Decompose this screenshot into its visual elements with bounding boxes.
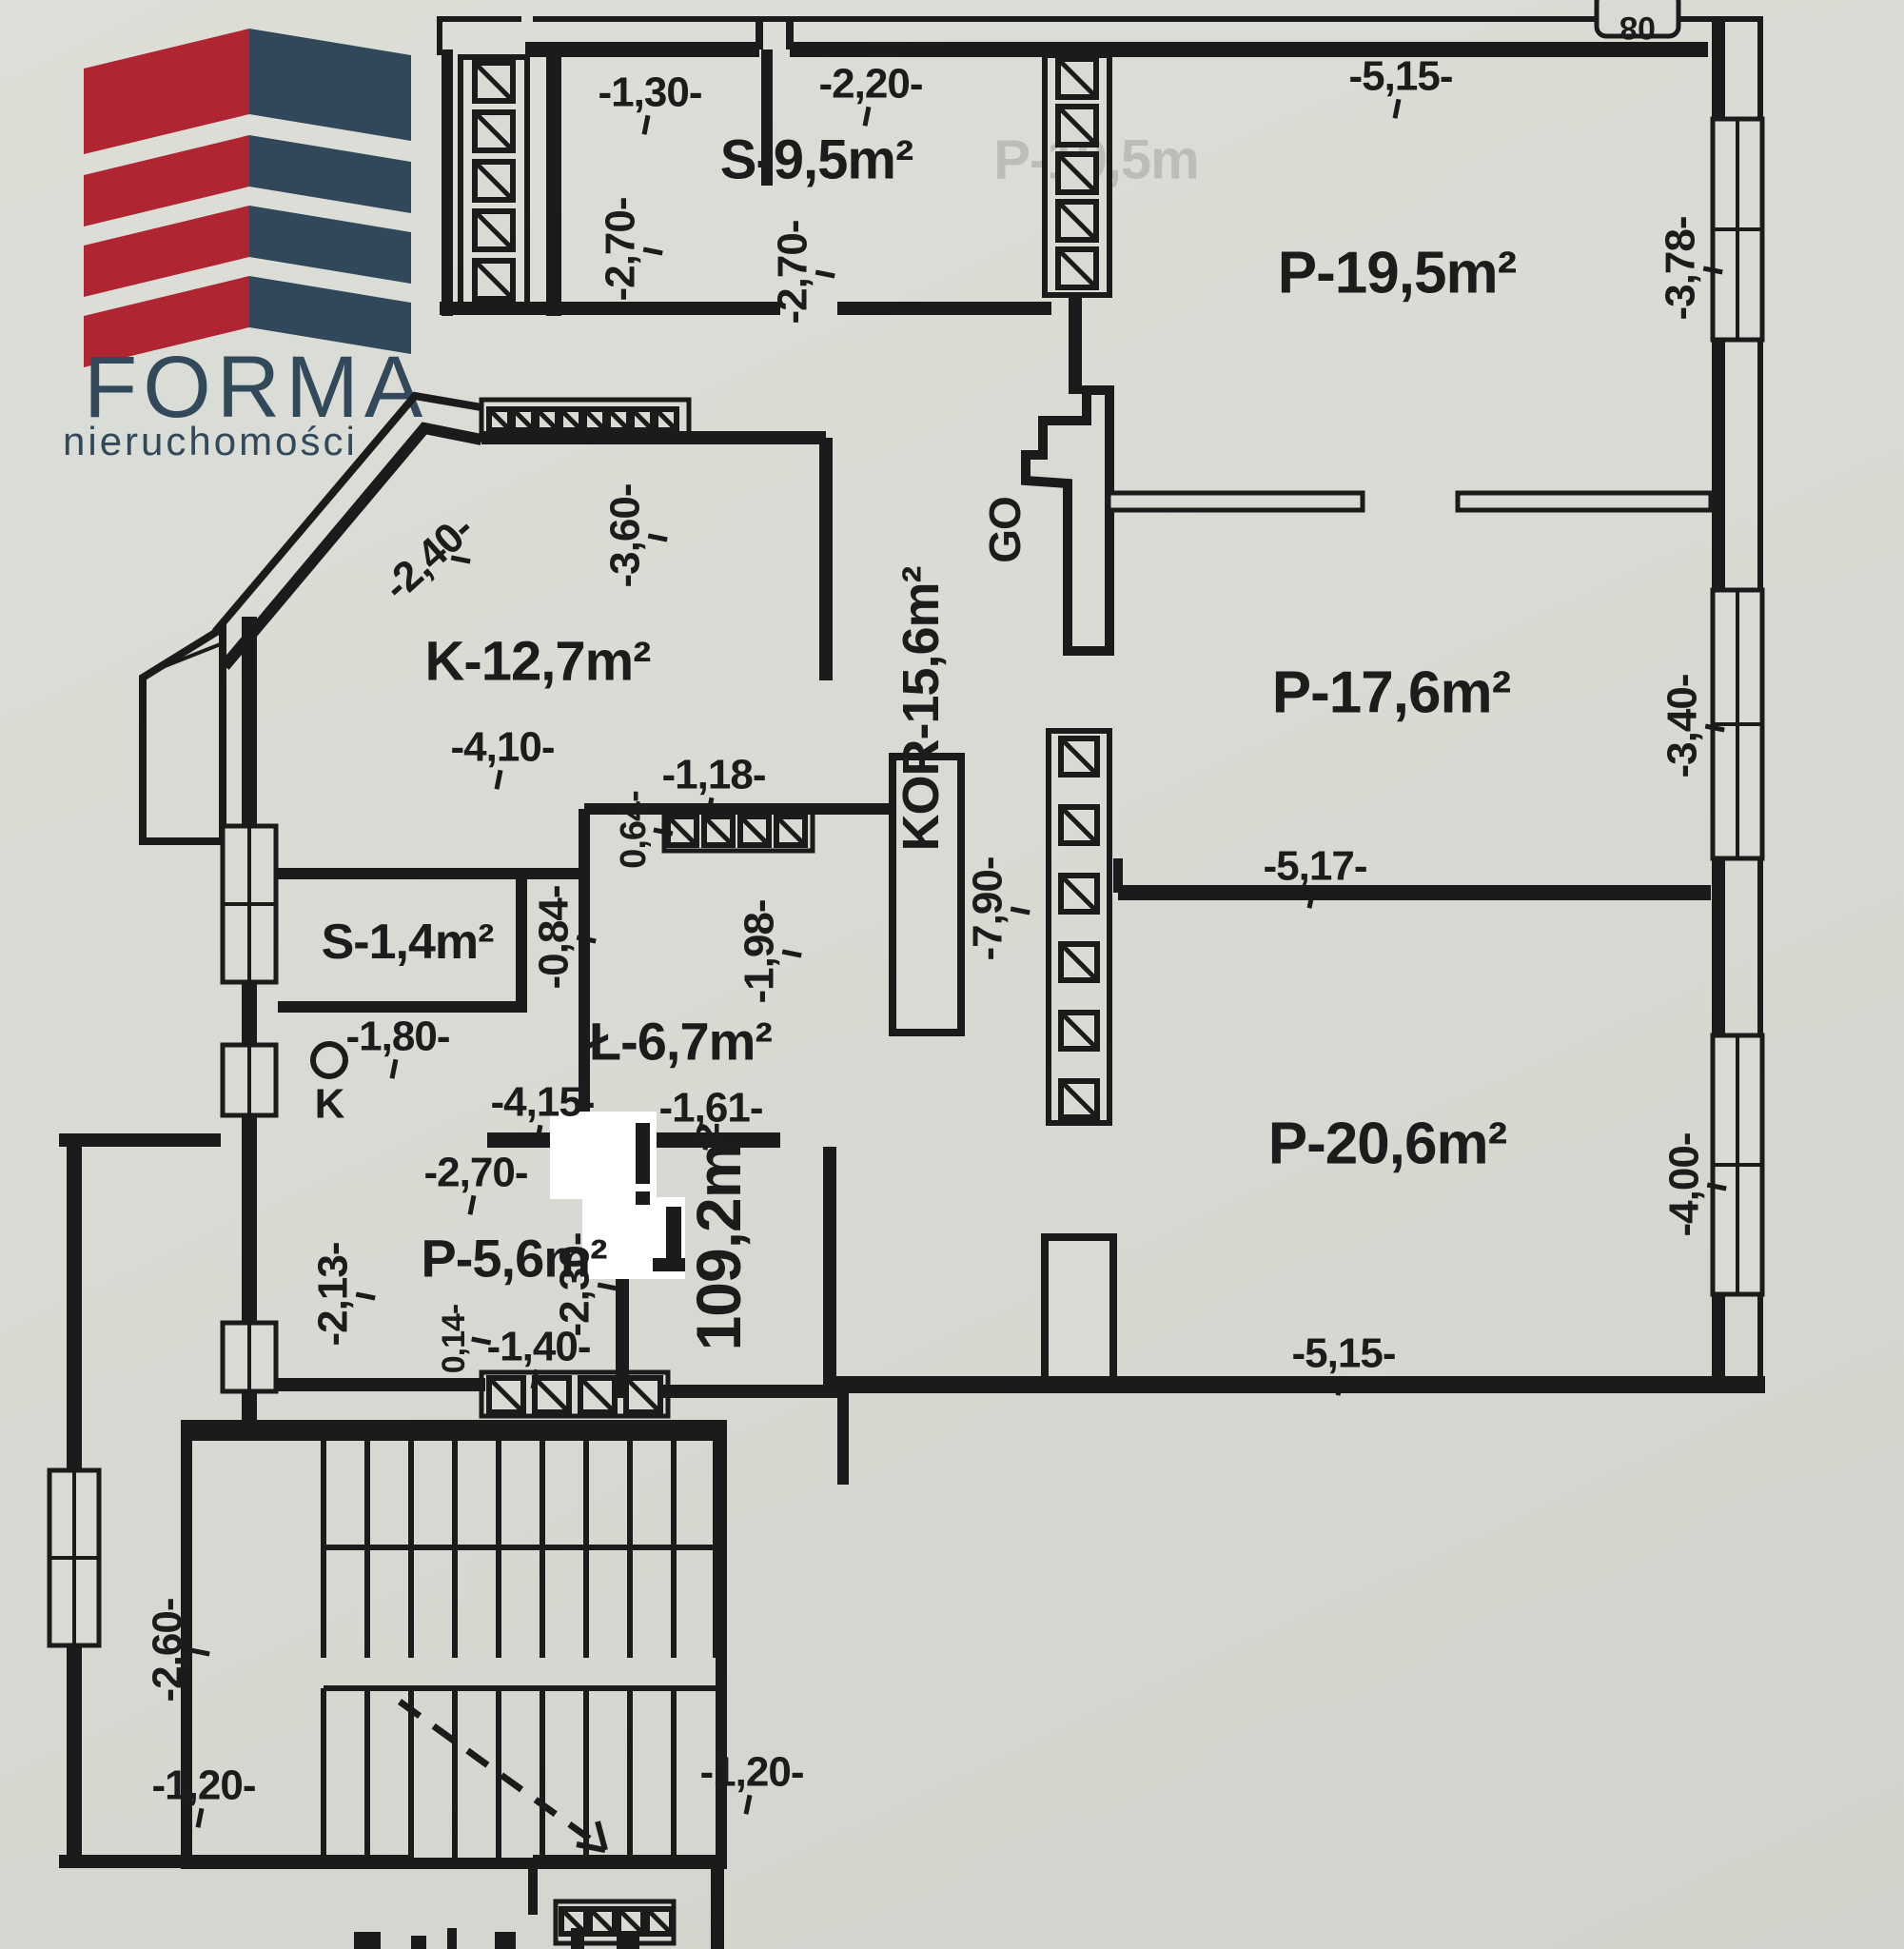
staircase [186, 1426, 721, 1863]
dim-1-18: -1,18- [662, 752, 766, 798]
dim-2-60: -2,60- [145, 1599, 191, 1703]
dim-1-30: -1,30- [599, 69, 702, 116]
dim-3-60-tick [648, 536, 667, 540]
dim-7-90: -7,90- [965, 857, 1011, 961]
cooker-ring-icon [313, 1044, 345, 1076]
dim-2-70-b-tick [815, 272, 834, 276]
dim-2-70-c: -2,70- [424, 1150, 528, 1196]
covered-text-fragment [653, 1258, 685, 1271]
dim-4-10-tick [497, 770, 501, 789]
covered-text-fragment [636, 1191, 650, 1205]
room-label-total-area: 109,2m² [683, 1124, 754, 1351]
dim-5-15-bottom: -5,15- [1292, 1330, 1396, 1377]
dim-0-14: 0,14- [436, 1305, 472, 1374]
room-label-p-19-5: P-19,5m² [1278, 241, 1517, 306]
dim-1-98: -1,98- [736, 900, 783, 1004]
label-go: GO [980, 497, 1030, 563]
vent-hatches [475, 59, 1097, 1934]
dim-2-30: -2,30- [552, 1233, 599, 1337]
dim-1-80-tick [392, 1059, 396, 1078]
dim-1-20-left: -1,20- [152, 1762, 256, 1809]
dim-2-40: -2,40- [374, 505, 482, 609]
dim-0-84: -0,84- [531, 886, 578, 990]
sheet-number: 08 [1619, 10, 1656, 46]
covered-text-fragment [636, 1123, 650, 1184]
room-label-p-17-6: P-17,6m² [1272, 660, 1511, 726]
covered-text-fragment [666, 1207, 681, 1264]
room-label-s-9-5: S-9,5m² [720, 129, 913, 191]
dim-5-15-top: -5,15- [1349, 53, 1453, 100]
dim-7-90-tick [1011, 909, 1030, 913]
dim-1-20-right: -1,20- [700, 1749, 804, 1796]
stair-direction-arrow [400, 1702, 605, 1850]
dim-1-20-left-tick [198, 1808, 202, 1827]
dim-3-40: -3,40- [1659, 675, 1706, 778]
floor-plan-scan: FORMA nieruchomości P-19,5m [0, 0, 1904, 1949]
room-label-s-1-4: S-1,4m² [322, 915, 495, 970]
sheet-number-badge: 08 [1597, 0, 1678, 46]
room-label-l-6-7: Ł-6,7m² [589, 1012, 772, 1072]
dim-2-20: -2,20- [819, 61, 923, 108]
dim-2-70-c-tick [470, 1195, 474, 1214]
dim-2-13: -2,13- [310, 1243, 357, 1347]
chimney-pillar [1026, 390, 1109, 651]
dim-3-60: -3,60- [602, 484, 649, 588]
room-label-k-12-7: K-12,7m² [425, 631, 652, 693]
dim-2-13-tick [356, 1294, 375, 1298]
dim-0-64: 0,64- [614, 791, 654, 869]
room-label-kor-15-6: KOR-15,6m² [893, 566, 950, 851]
logo-subtitle: nieruchomości [63, 419, 358, 463]
dim-4-00: -4,00- [1661, 1133, 1708, 1237]
dim-2-70-b: -2,70- [770, 221, 816, 325]
dim-2-60-tick [190, 1650, 209, 1654]
room-label-p-20-6: P-20,6m² [1268, 1112, 1507, 1177]
dim-1-98-tick [782, 952, 801, 955]
dim-1-20-right-tick [746, 1795, 750, 1814]
dim-1-61: -1,61- [659, 1085, 763, 1132]
dim-2-70-a-tick [643, 249, 662, 253]
label-cooker-k: K [315, 1081, 345, 1128]
dim-1-80: -1,80- [346, 1014, 450, 1060]
dim-5-17: -5,17- [1264, 843, 1367, 890]
dim-2-70-a: -2,70- [598, 198, 644, 302]
dim-3-78: -3,78- [1658, 217, 1704, 321]
dim-2-20-tick [865, 107, 869, 126]
dim-1-30-tick [644, 115, 648, 134]
dim-4-15: -4,15- [491, 1079, 595, 1126]
dim-5-15-top-tick [1395, 99, 1399, 118]
forma-logo: FORMA nieruchomości [63, 29, 428, 463]
logo-building-icon [84, 29, 411, 367]
dim-4-10: -4,10- [451, 724, 555, 771]
